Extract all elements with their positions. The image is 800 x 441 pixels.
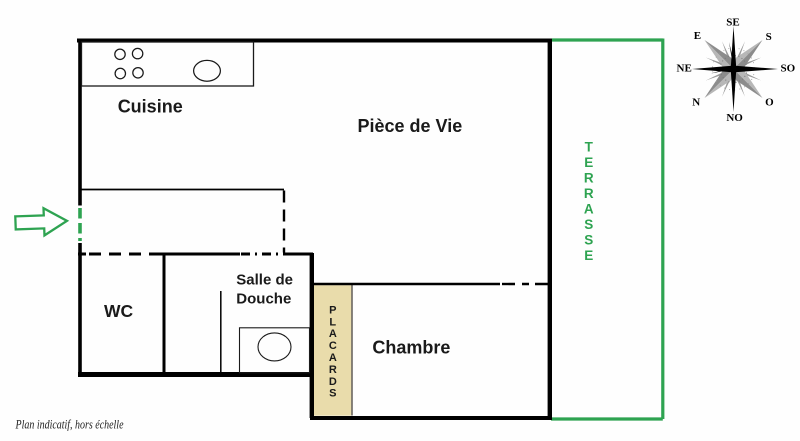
- svg-text:R: R: [329, 364, 337, 376]
- svg-text:NO: NO: [726, 112, 743, 124]
- svg-text:O: O: [765, 96, 774, 108]
- svg-text:Douche: Douche: [236, 291, 291, 308]
- svg-text:S: S: [584, 232, 593, 247]
- svg-text:D: D: [329, 376, 337, 388]
- svg-text:P: P: [329, 304, 336, 316]
- svg-text:Salle de: Salle de: [236, 272, 293, 289]
- svg-text:A: A: [584, 201, 594, 216]
- svg-text:SO: SO: [780, 62, 795, 74]
- svg-text:T: T: [585, 139, 594, 154]
- svg-text:R: R: [584, 186, 594, 201]
- svg-text:A: A: [329, 352, 337, 364]
- svg-text:L: L: [329, 316, 336, 328]
- svg-text:C: C: [329, 340, 337, 352]
- svg-text:R: R: [584, 170, 594, 185]
- svg-text:WC: WC: [104, 301, 134, 321]
- svg-text:N: N: [692, 96, 700, 108]
- svg-text:S: S: [766, 31, 772, 43]
- svg-text:Chambre: Chambre: [372, 338, 450, 358]
- svg-text:E: E: [584, 248, 593, 263]
- svg-text:Pièce de Vie: Pièce de Vie: [358, 116, 463, 136]
- svg-text:Cuisine: Cuisine: [118, 97, 183, 117]
- svg-text:SE: SE: [726, 16, 739, 28]
- svg-text:A: A: [329, 328, 337, 340]
- svg-text:E: E: [694, 30, 701, 42]
- svg-text:Plan indicatif, hors échelle: Plan indicatif, hors échelle: [15, 417, 124, 431]
- svg-text:S: S: [584, 217, 593, 232]
- svg-text:E: E: [584, 155, 593, 170]
- svg-text:S: S: [329, 388, 336, 400]
- svg-text:NE: NE: [677, 62, 692, 74]
